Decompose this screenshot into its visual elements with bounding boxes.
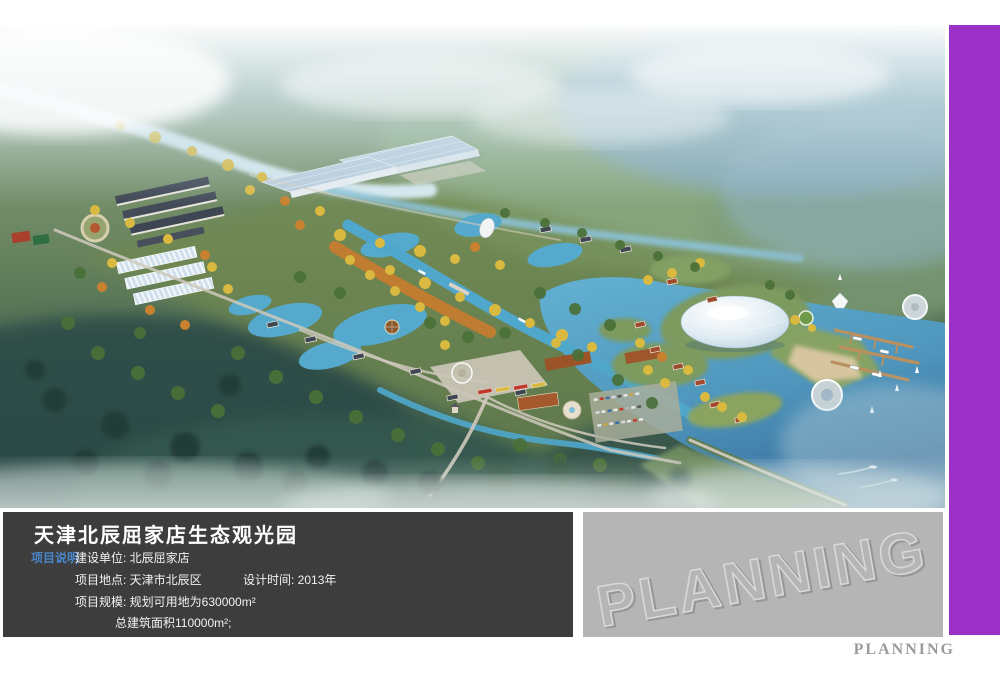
watermark-text: PLANNING [592,517,933,637]
planning-watermark-box: PLANNING PLANNING [583,512,943,637]
accent-bar [949,25,1000,635]
helipad [799,311,813,325]
presentation-board: 天津北辰屈家店生态观光园 项目说明 建设单位: 北辰屈家店 项目地点: 天津市北… [0,0,1000,678]
aerial-scene [0,25,945,508]
construction-unit-row: 建设单位: 北辰屈家店 [75,549,190,566]
round-pavilion [385,320,399,334]
project-description-tag: 项目说明 [31,549,79,566]
project-location-row: 项目地点: 天津市北辰区 [75,571,202,588]
building-area-row: 总建筑面积110000m²; [115,614,231,631]
glass-dome-building [681,296,789,352]
project-title: 天津北辰屈家店生态观光园 [34,519,298,548]
watermark-svg: PLANNING PLANNING [583,512,943,637]
project-scale-row: 项目规模: 规划可用地为630000m² [75,593,256,610]
aerial-rendering [0,25,945,508]
design-time-row: 设计时间: 2013年 [243,571,336,588]
planning-footer-text: PLANNING [845,641,955,659]
project-info-panel: 天津北辰屈家店生态观光园 项目说明 建设单位: 北辰屈家店 项目地点: 天津市北… [3,512,573,637]
